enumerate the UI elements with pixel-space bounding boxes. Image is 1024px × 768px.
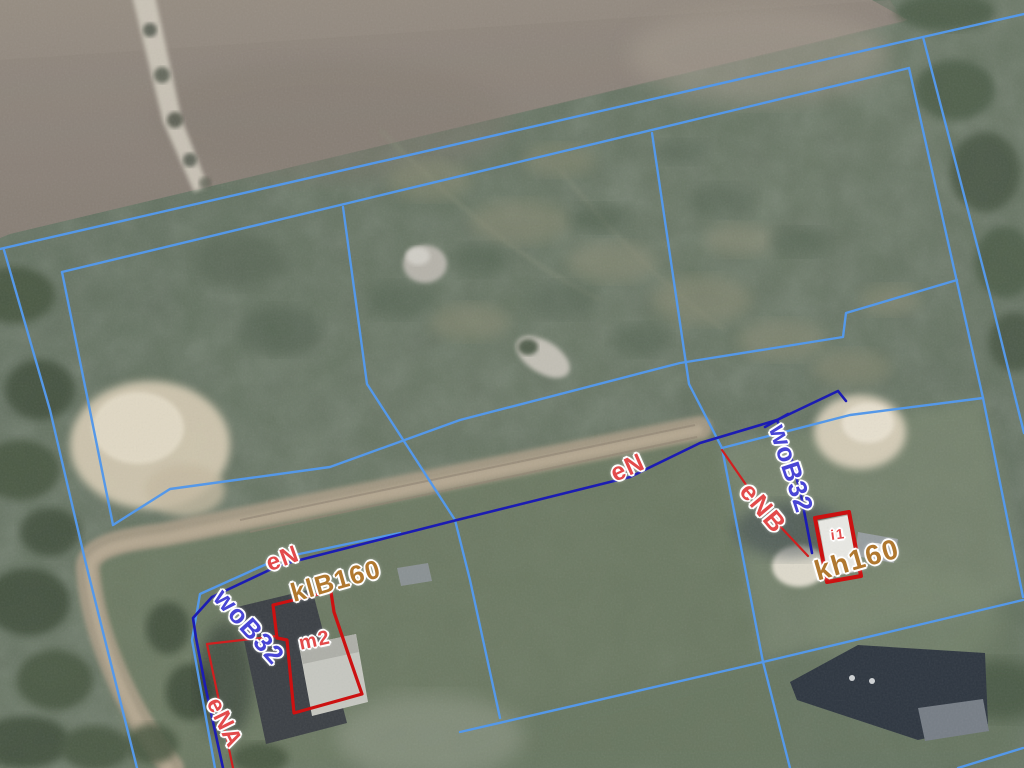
building-outline[interactable]	[273, 592, 362, 713]
parcel-boundary-line[interactable]	[4, 250, 137, 768]
aerial-map-view[interactable]: eNklB160woB32eNAm2eNwoB32eNBkh160i1	[0, 0, 1024, 768]
parcel-boundary-line[interactable]	[909, 68, 1023, 597]
parcel-boundary-line[interactable]	[0, 14, 1024, 249]
parcel-boundary-line[interactable]	[958, 748, 1023, 768]
parcel-boundary-line[interactable]	[722, 398, 983, 448]
parcel-boundary-lines-layer	[0, 14, 1024, 768]
parcel-boundary-line[interactable]	[343, 207, 500, 718]
parcel-boundary-line[interactable]	[192, 533, 400, 768]
service-connection-line[interactable]	[722, 450, 808, 556]
utility-line[interactable]	[765, 414, 788, 427]
utility-line[interactable]	[777, 420, 812, 553]
building-outline[interactable]	[815, 512, 861, 582]
parcel-boundary-line[interactable]	[113, 280, 957, 525]
parcel-boundary-line[interactable]	[62, 68, 909, 272]
parcel-boundary-line[interactable]	[460, 600, 1023, 732]
map-feature-overlay	[0, 0, 1024, 768]
parcel-boundary-line[interactable]	[62, 272, 113, 525]
parcel-boundary-line[interactable]	[923, 37, 1024, 433]
